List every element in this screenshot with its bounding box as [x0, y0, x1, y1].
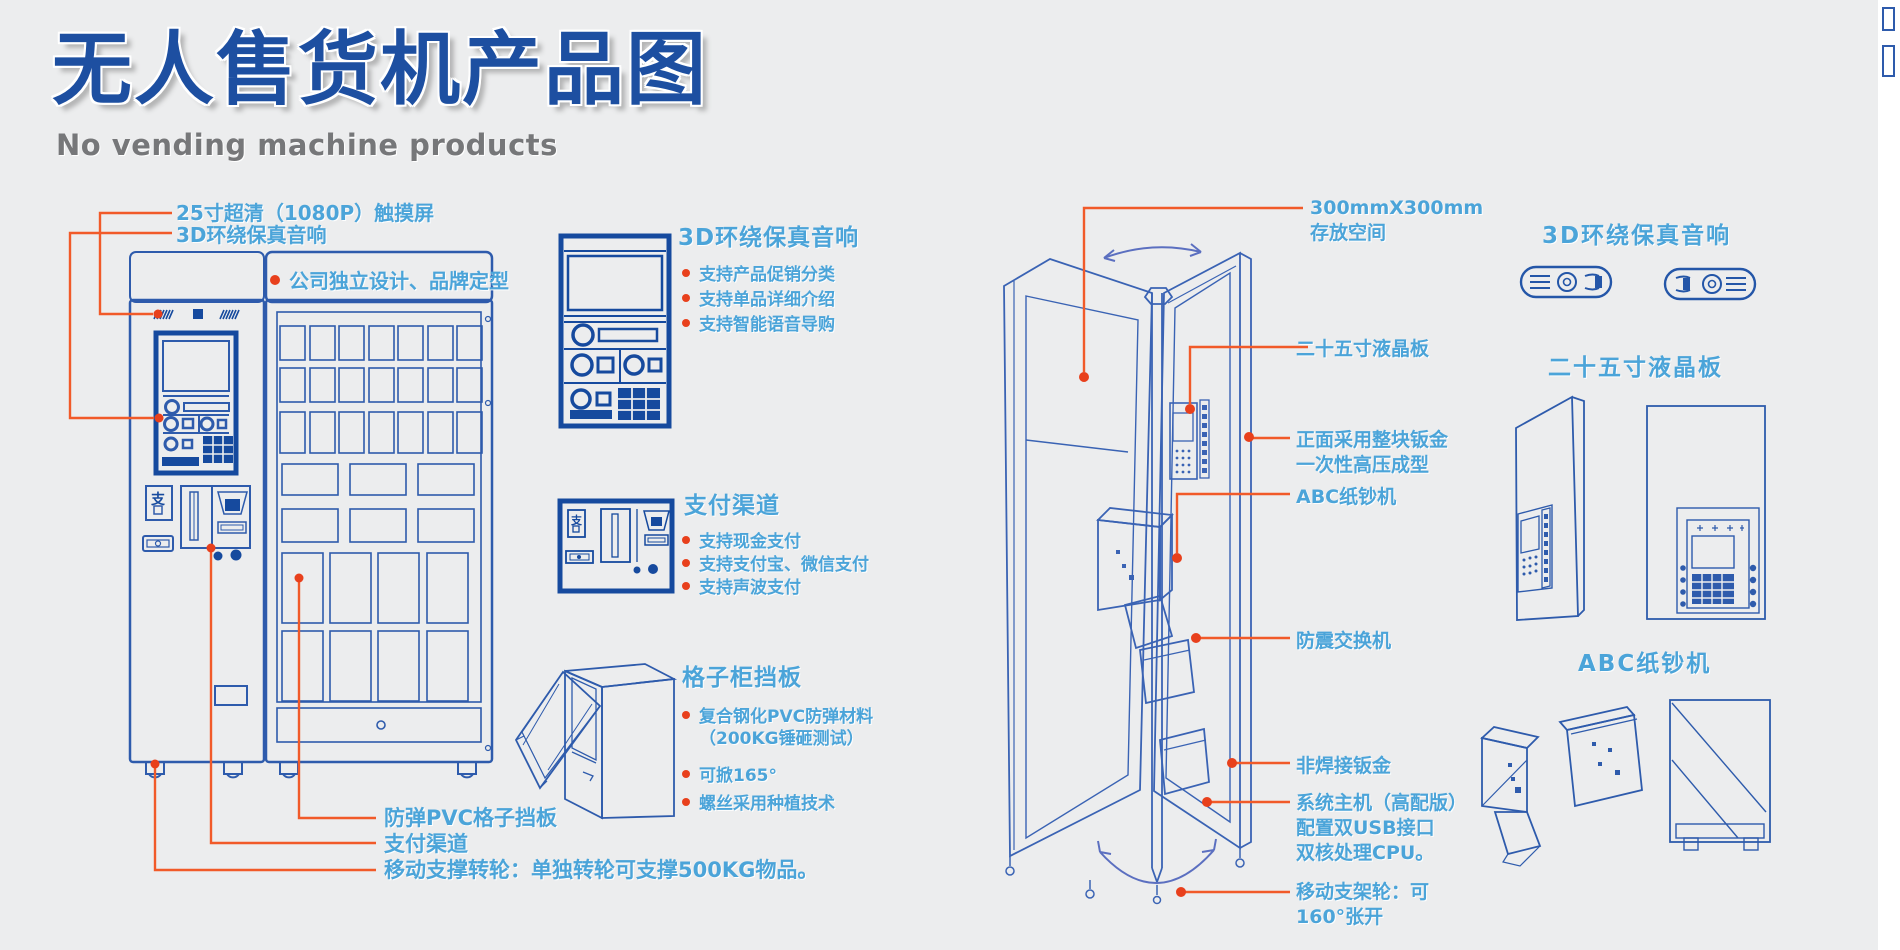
brand-note-text: 公司独立设计、品牌定型 [289, 268, 509, 294]
callout-switch: 防震交换机 [1296, 629, 1391, 654]
speaker-pill-drawings [1521, 267, 1755, 299]
feature-item-text: 可掀165° [699, 765, 777, 787]
callout-system-host: 系统主机（高配版） 配置双USB接口 双核处理CPU。 [1296, 791, 1467, 866]
host-box-drawing [1160, 729, 1209, 794]
feature-item-text: 支持支付宝、微信支付 [699, 554, 869, 576]
feature-item: 支持支付宝、微信支付 [682, 554, 869, 576]
control-panel-drawing [156, 333, 236, 473]
bullet-icon [682, 269, 690, 277]
brand-note: 公司独立设计、品牌定型 [270, 268, 509, 294]
payment-area-drawing [143, 486, 250, 705]
bullet-icon [682, 559, 690, 567]
callout-caster: 移动支撑转轮：单独转轮可支撑500KG物品。 [384, 858, 818, 882]
lcd-panel-front-drawing [1647, 406, 1765, 619]
callout-payment: 支付渠道 [384, 832, 468, 856]
feature-item-text: 支持现金支付 [699, 531, 801, 553]
locker-door-drawing [516, 664, 674, 818]
panel-title-audio: 3D环绕保真音响 [1542, 224, 1731, 249]
speaker-left-icon [1521, 267, 1611, 297]
feature-item: 支持产品促销分类 [682, 264, 835, 286]
open-angle-arrow-icon [1098, 839, 1216, 883]
feature-audio-title: 3D环绕保真音响 [678, 226, 859, 251]
feature-item: 复合钢化PVC防弹材料 （200KG锤砸测试） [682, 706, 873, 750]
bullet-icon [682, 770, 690, 778]
speaker-panel-drawing [561, 236, 669, 426]
bullet-icon [682, 582, 690, 590]
feature-item: 支持单品详细介绍 [682, 289, 835, 311]
bullet-icon [682, 798, 690, 806]
open-machine-drawing [1004, 244, 1251, 904]
page-title: 无人售货机产品图 [52, 30, 708, 110]
machine-feet-drawing [146, 762, 476, 777]
abc-bill-machine-drawings [1482, 700, 1770, 866]
lcd-panel-drawings [1516, 397, 1765, 620]
panel-title-lcd: 二十五寸液晶板 [1548, 356, 1723, 381]
rotation-arrow-icon [1104, 244, 1201, 261]
bill-acceptor-drawing [1098, 508, 1172, 648]
speaker-right-icon [1665, 269, 1755, 299]
feature-item: 可掀165° [682, 765, 777, 787]
callout-bracket-wheel: 移动支架轮：可 160°张开 [1296, 880, 1429, 930]
lcd-panel-side-drawing [1516, 397, 1584, 620]
feature-item-text: 螺丝采用种植技术 [699, 793, 835, 815]
feature-item-text: 支持单品详细介绍 [699, 289, 835, 311]
feature-payment-title: 支付渠道 [684, 494, 780, 519]
edge-strip [1878, 0, 1900, 950]
locker-grid-drawing [277, 312, 491, 751]
feature-item: 支持智能语音导购 [682, 314, 835, 336]
feature-item: 支持声波支付 [682, 577, 801, 599]
bullet-icon [682, 711, 690, 719]
feature-item-text: 支持声波支付 [699, 577, 801, 599]
feature-item-text: 支持产品促销分类 [699, 264, 835, 286]
callout-pvc-board: 防弹PVC格子挡板 [384, 806, 557, 830]
feature-item: 螺丝采用种植技术 [682, 793, 835, 815]
product-poster: 无人售货机产品图 No vending machine products 25寸… [0, 0, 1900, 950]
page-subtitle: No vending machine products [56, 128, 558, 162]
feature-item: 支持现金支付 [682, 531, 801, 553]
panel-title-abc: ABC纸钞机 [1578, 652, 1711, 677]
callout-audio: 3D环绕保真音响 [176, 224, 327, 246]
callout-touchscreen: 25寸超清（1080P）触摸屏 [176, 202, 434, 224]
abc-exploded-drawing [1482, 707, 1642, 866]
abc-front-drawing [1670, 700, 1770, 850]
feature-item-text: 支持智能语音导购 [699, 314, 835, 336]
bullet-icon [270, 275, 280, 285]
bullet-icon [682, 319, 690, 327]
callout-bill-machine: ABC纸钞机 [1296, 485, 1396, 510]
front-machine-drawing [130, 252, 492, 777]
callout-lcd-panel: 二十五寸液晶板 [1296, 337, 1429, 362]
bullet-icon [682, 536, 690, 544]
feature-item-text: 复合钢化PVC防弹材料 （200KG锤砸测试） [699, 706, 873, 750]
callout-sheet-metal: 正面采用整块钣金 一次性高压成型 [1296, 428, 1448, 478]
feature-locker-title: 格子柜挡板 [682, 666, 802, 691]
callout-storage-space: 300mmX300mm 存放空间 [1310, 196, 1483, 246]
bullet-icon [682, 294, 690, 302]
callout-weldless: 非焊接钣金 [1296, 754, 1391, 779]
pay-glyph-small: 支 [571, 512, 582, 528]
pay-glyph: 支 [151, 489, 165, 509]
